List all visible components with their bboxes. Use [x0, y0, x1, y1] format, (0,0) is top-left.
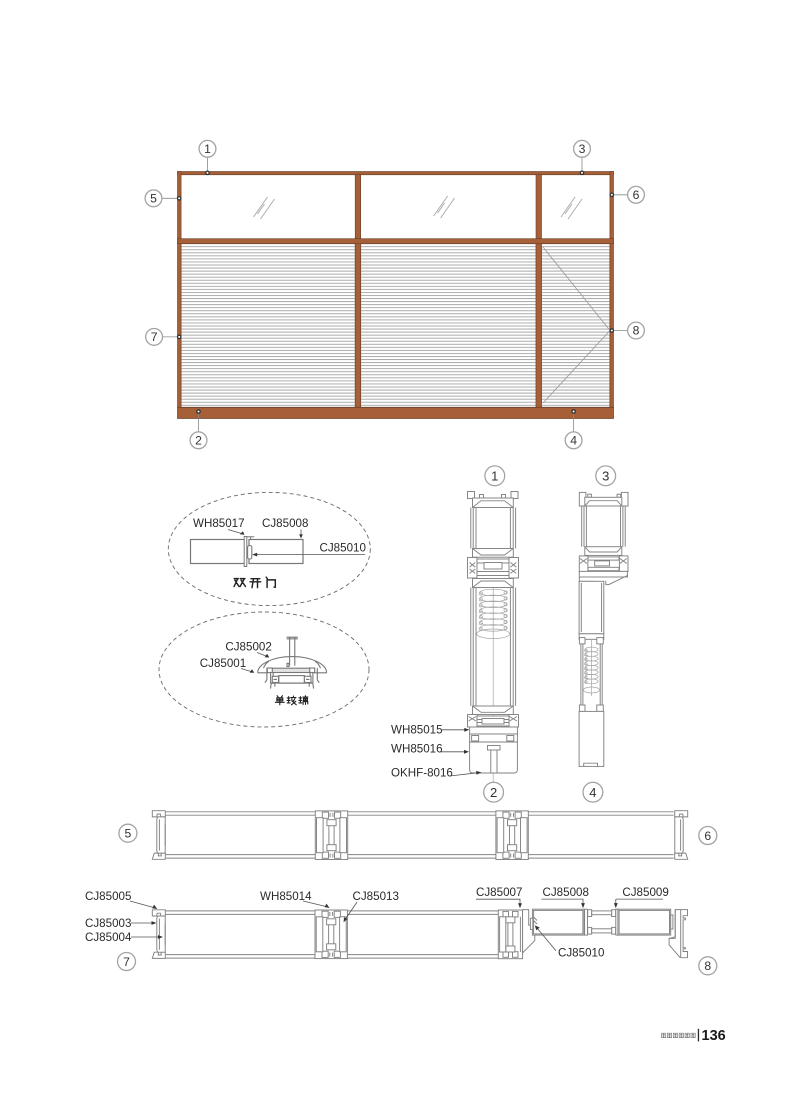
svg-text:CJ85005: CJ85005 [85, 890, 131, 903]
svg-text:2: 2 [195, 434, 202, 448]
svg-text:4: 4 [589, 785, 596, 800]
svg-text:CJ85009: CJ85009 [622, 886, 668, 899]
svg-text:CJ85008: CJ85008 [543, 886, 589, 899]
svg-text:CJ85007: CJ85007 [476, 886, 522, 899]
svg-text:5: 5 [150, 192, 157, 206]
svg-text:CJ85013: CJ85013 [353, 890, 399, 903]
svg-text:136: 136 [702, 1028, 726, 1044]
svg-text:CJ85001: CJ85001 [200, 657, 246, 670]
svg-text:7: 7 [123, 955, 130, 969]
svg-text:8: 8 [633, 324, 640, 338]
svg-text:3: 3 [579, 142, 586, 156]
svg-text:WH85015: WH85015 [391, 723, 443, 736]
svg-text:6: 6 [704, 829, 711, 843]
svg-text:4: 4 [570, 434, 577, 448]
svg-text:5: 5 [125, 827, 132, 841]
svg-text:CJ85008: CJ85008 [262, 517, 308, 530]
svg-text:CJ85010: CJ85010 [320, 542, 366, 555]
svg-text:7: 7 [151, 330, 158, 344]
svg-text:CJ85002: CJ85002 [225, 640, 271, 653]
svg-text:CJ85003: CJ85003 [85, 917, 131, 930]
svg-text:6: 6 [633, 188, 640, 202]
svg-text:8: 8 [704, 959, 711, 973]
svg-text:WH85017: WH85017 [193, 517, 245, 530]
svg-text:1: 1 [491, 468, 498, 483]
svg-text:1: 1 [204, 142, 211, 156]
svg-text:2: 2 [490, 785, 497, 800]
svg-text:OKHF-8016: OKHF-8016 [391, 767, 453, 780]
svg-text:CJ85004: CJ85004 [85, 931, 132, 944]
svg-text:WH85016: WH85016 [391, 742, 443, 755]
svg-text:3: 3 [602, 468, 609, 483]
svg-text:CJ85010: CJ85010 [558, 946, 604, 959]
